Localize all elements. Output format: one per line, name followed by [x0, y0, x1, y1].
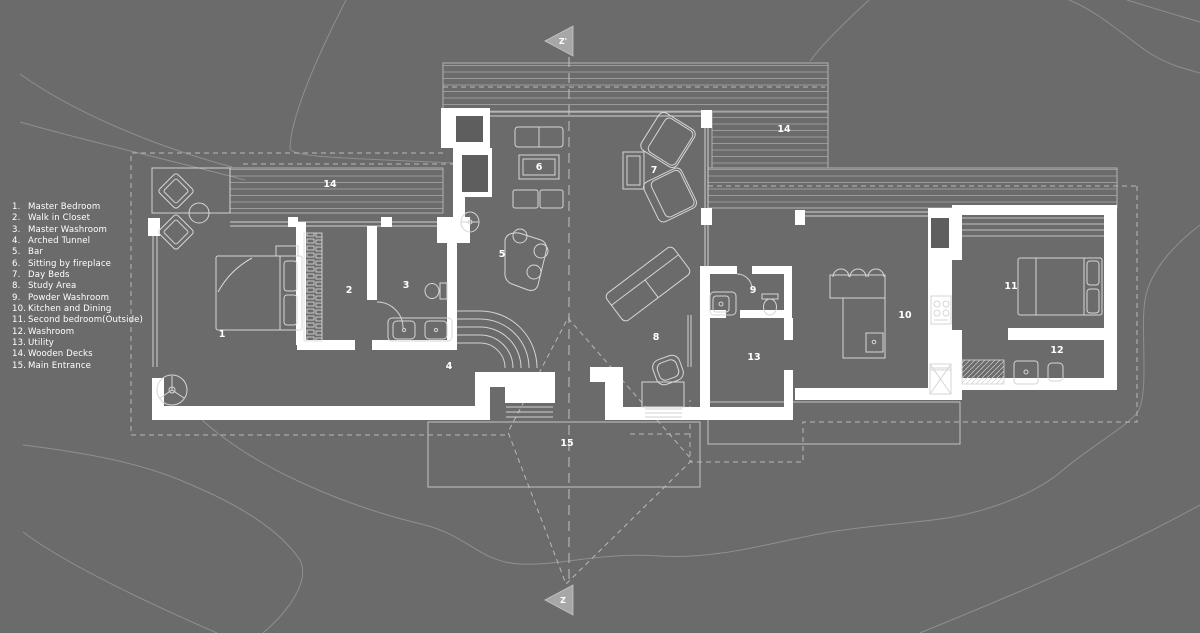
- legend-item: 10.Kitchen and Dining: [12, 304, 143, 315]
- bedroom-window-band: [962, 218, 1104, 236]
- legend-item: 5.Bar: [12, 247, 143, 258]
- room-label-6: 6: [536, 162, 543, 173]
- legend-item: 9.Powder Washroom: [12, 293, 143, 304]
- patio-armchairs: [158, 173, 209, 251]
- master-bed: [216, 246, 302, 330]
- room-label-7: 7: [651, 165, 658, 176]
- dashed-boundaries: [131, 57, 1137, 584]
- section-label-top: Z': [559, 37, 567, 46]
- legend-item: 1.Master Bedroom: [12, 202, 143, 213]
- wardrobe: [304, 233, 322, 341]
- second-bed: [1018, 258, 1102, 315]
- master-washroom-fixtures: [377, 283, 452, 341]
- deck-top-right: [712, 112, 828, 168]
- kitchen-island: [830, 269, 885, 358]
- deck-label-left: 14: [323, 179, 337, 190]
- deck-right-band: [708, 168, 1117, 208]
- room-label-9: 9: [750, 285, 757, 296]
- legend-item: 15.Main Entrance: [12, 361, 143, 372]
- deck-left: [230, 168, 443, 213]
- room-label-8: 8: [653, 332, 660, 343]
- legend-item: 4.Arched Tunnel: [12, 236, 143, 247]
- room-label-2: 2: [346, 285, 353, 296]
- room-label-1: 1: [219, 329, 226, 340]
- entrance-porch: [428, 422, 700, 487]
- room-label-3: 3: [403, 280, 410, 291]
- room-label-5: 5: [499, 249, 506, 260]
- legend-item: 12.Washroom: [12, 327, 143, 338]
- entrance-label: 15: [560, 438, 573, 449]
- legend: 1.Master Bedroom 2.Walk in Closet 3.Mast…: [12, 202, 143, 372]
- room-label-10: 10: [898, 310, 912, 321]
- legend-item: 8.Study Area: [12, 281, 143, 292]
- legend-item: 3.Master Washroom: [12, 225, 143, 236]
- deck-label-right: 14: [777, 124, 791, 135]
- floor-plan-canvas: Z' Z 1 2 3 4 5 6 7 8 9 10 11 12 13 14 14…: [0, 0, 1200, 633]
- room-label-13: 13: [747, 352, 760, 363]
- legend-item: 11.Second bedroom(Outside): [12, 315, 143, 326]
- legend-item: 2.Walk in Closet: [12, 213, 143, 224]
- floor-plan-drawing: Z' Z 1 2 3 4 5 6 7 8 9 10 11 12 13 14 14…: [0, 0, 1200, 633]
- section-marker-bottom: [545, 585, 573, 615]
- legend-item: 14.Wooden Decks: [12, 349, 143, 360]
- room-label-12: 12: [1050, 345, 1063, 356]
- arched-tunnel: [457, 311, 537, 368]
- bar-counter: [505, 229, 548, 290]
- day-beds: [623, 110, 699, 224]
- powder-washroom-fixtures: [710, 274, 778, 315]
- section-label-bottom: Z: [560, 596, 566, 605]
- room-label-4: 4: [446, 361, 453, 372]
- legend-item: 6.Sitting by fireplace: [12, 259, 143, 270]
- legend-item: 7.Day Beds: [12, 270, 143, 281]
- legend-item: 13.Utility: [12, 338, 143, 349]
- room-label-11: 11: [1004, 281, 1017, 292]
